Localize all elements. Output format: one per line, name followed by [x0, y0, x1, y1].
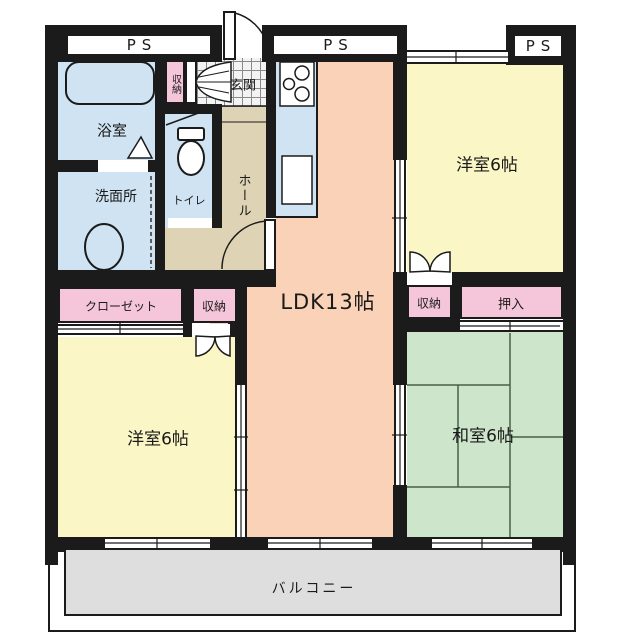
room-toilet — [165, 114, 212, 228]
label-washroom: 洗面所 — [95, 186, 137, 206]
wall-segment — [183, 287, 192, 337]
entrance-storage-door — [185, 60, 197, 104]
wall-left-outer — [45, 25, 58, 565]
room-bathroom — [58, 58, 158, 162]
pipe-space-center: PS — [272, 34, 399, 56]
label-closet: クローゼット — [85, 298, 157, 315]
label-western-top: 洋室6帖 — [456, 151, 518, 176]
wall-segment — [266, 50, 276, 104]
sliding-partition-ldk — [235, 385, 247, 537]
hall-door-opening — [266, 218, 276, 270]
bedroom-storage-sill — [407, 272, 452, 285]
room-hall-lower — [165, 228, 222, 270]
sliding-door-japanese — [394, 385, 406, 485]
closet-sliding-door — [58, 324, 183, 335]
label-entrance-storage: 収納 — [168, 74, 183, 94]
floor-plan: PS PS PS — [0, 0, 640, 640]
label-bathroom: 浴室 — [97, 120, 127, 141]
pipe-space-left: PS — [66, 34, 212, 56]
wall-segment — [212, 104, 222, 228]
wall-segment — [452, 272, 576, 285]
label-bedroom-storage: 収納 — [417, 295, 441, 312]
bath-door-sill — [98, 160, 148, 172]
wall-right-outer — [563, 25, 576, 565]
label-entrance: 玄関 — [230, 75, 256, 94]
wall-segment — [266, 104, 276, 218]
label-hall-storage: 収納 — [202, 298, 226, 315]
label-toilet: トイレ — [173, 192, 206, 208]
label-hall: ホール — [234, 174, 253, 219]
label-western-bottom: 洋室6帖 — [127, 425, 189, 450]
oshiire-sliding-door — [460, 320, 563, 332]
pipe-space-right: PS — [513, 34, 563, 58]
label-japanese: 和室6帖 — [452, 422, 514, 447]
window-balcony-japanese — [432, 537, 532, 550]
entrance-door — [224, 12, 267, 59]
wall-segment — [393, 332, 407, 385]
label-balcony: バルコニー — [272, 578, 357, 598]
wall-segment — [148, 160, 165, 172]
wall-segment — [45, 160, 98, 172]
label-oshiire: 押入 — [498, 294, 524, 313]
window-balcony-west — [105, 537, 210, 550]
window-balcony-ldk — [268, 537, 372, 550]
label-ldk: LDK13帖 — [280, 286, 375, 316]
sliding-door-western-top — [394, 160, 406, 272]
hall-storage-sill — [192, 324, 230, 336]
toilet-door-sill — [168, 218, 212, 228]
wall-segment — [155, 58, 165, 287]
wall-segment — [235, 270, 247, 385]
window-top — [407, 50, 508, 64]
wall-segment — [393, 318, 460, 332]
